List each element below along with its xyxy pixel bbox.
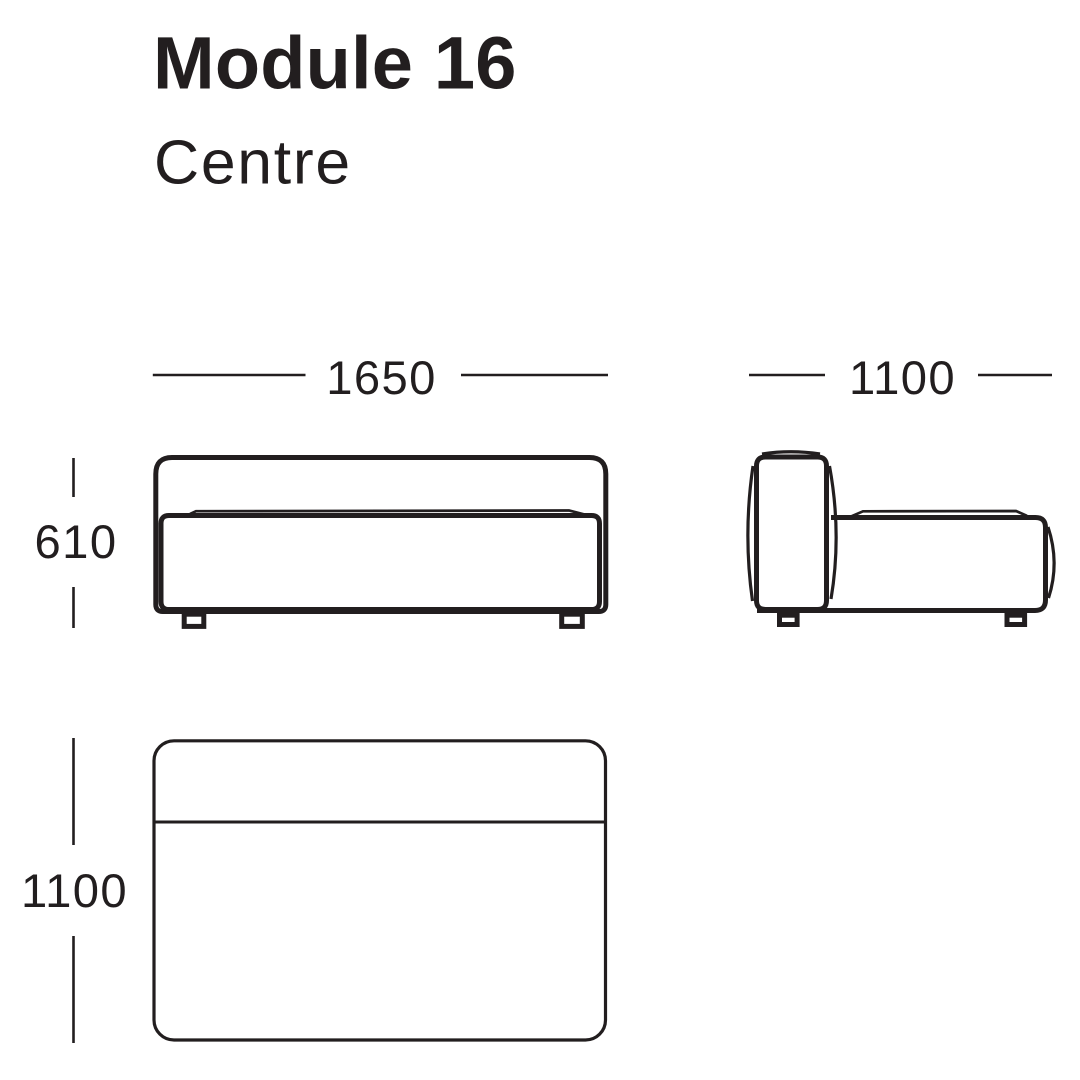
svg-text:Module 16: Module 16 xyxy=(153,22,517,105)
svg-text:1650: 1650 xyxy=(326,352,437,405)
svg-text:1100: 1100 xyxy=(849,352,956,405)
svg-text:Centre: Centre xyxy=(154,128,352,198)
svg-text:1100: 1100 xyxy=(21,865,128,918)
svg-text:610: 610 xyxy=(35,516,118,569)
